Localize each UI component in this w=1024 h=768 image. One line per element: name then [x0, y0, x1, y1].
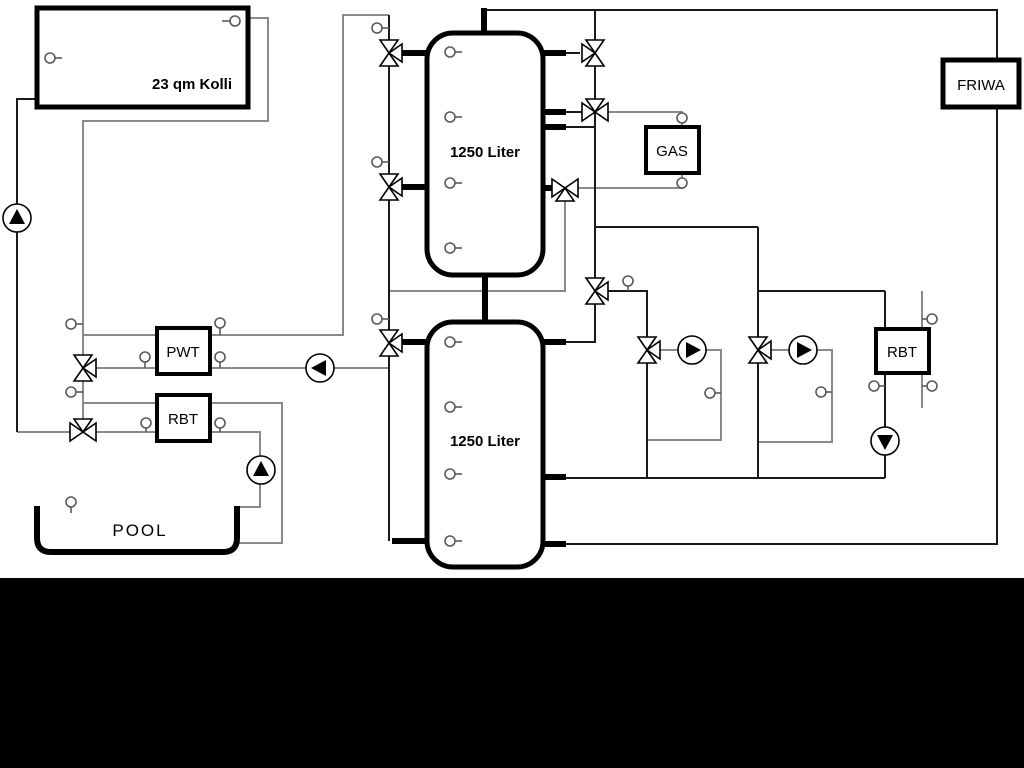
pipe-top-header-friwa	[484, 10, 997, 544]
rbt-left-label: RBT	[168, 411, 198, 428]
tank1-label: 1250 Liter	[450, 144, 520, 161]
temp-sensor-icon	[927, 381, 937, 391]
temp-sensor-icon	[445, 47, 455, 57]
temp-sensor-icon	[677, 113, 687, 123]
temp-sensor-icon	[230, 16, 240, 26]
temp-sensor-icon	[215, 418, 225, 428]
temp-sensor-icon	[623, 276, 633, 286]
pipe-circuit1-feed	[608, 291, 647, 478]
temp-sensor-icon	[445, 536, 455, 546]
temp-sensor-icon	[141, 418, 151, 428]
friwa-label: FRIWA	[957, 77, 1005, 94]
temp-sensor-icon	[140, 352, 150, 362]
bottom-black-band	[0, 578, 1024, 768]
temp-sensor-icon	[677, 178, 687, 188]
temp-sensor-icon	[869, 381, 879, 391]
pipe-gas-flow	[608, 112, 682, 127]
temp-sensor-icon	[215, 352, 225, 362]
temp-sensor-icon	[445, 469, 455, 479]
temp-sensor-icon	[705, 388, 715, 398]
temp-sensor-icon	[66, 497, 76, 507]
temp-sensor-icon	[445, 337, 455, 347]
temp-sensor-icon	[66, 387, 76, 397]
temp-sensor-icon	[445, 178, 455, 188]
tank2-label: 1250 Liter	[450, 433, 520, 450]
temp-sensor-icon	[45, 53, 55, 63]
temp-sensor-icon	[66, 319, 76, 329]
pwt-label: PWT	[166, 344, 199, 361]
temp-sensor-icon	[816, 387, 826, 397]
rbt-right-label: RBT	[887, 344, 917, 361]
temp-sensor-icon	[927, 314, 937, 324]
temp-sensor-icon	[445, 402, 455, 412]
pool-label: POOL	[112, 521, 167, 540]
gas-label: GAS	[656, 143, 688, 160]
temp-sensor-icon	[445, 243, 455, 253]
schematic-svg: 23 qm Kolli 1250 Liter 1250 Liter PWT RB…	[0, 0, 1024, 768]
schematic-canvas: 23 qm Kolli 1250 Liter 1250 Liter PWT RB…	[0, 0, 1024, 768]
temp-sensor-icon	[372, 23, 382, 33]
pipe-solar-supply	[17, 99, 37, 432]
temp-sensor-icon	[445, 112, 455, 122]
pipe-gas-return	[578, 173, 682, 188]
temp-sensor-icon	[215, 318, 225, 328]
temp-sensor-icon	[372, 157, 382, 167]
collector-label: 23 qm Kolli	[152, 76, 232, 93]
temp-sensor-icon	[372, 314, 382, 324]
